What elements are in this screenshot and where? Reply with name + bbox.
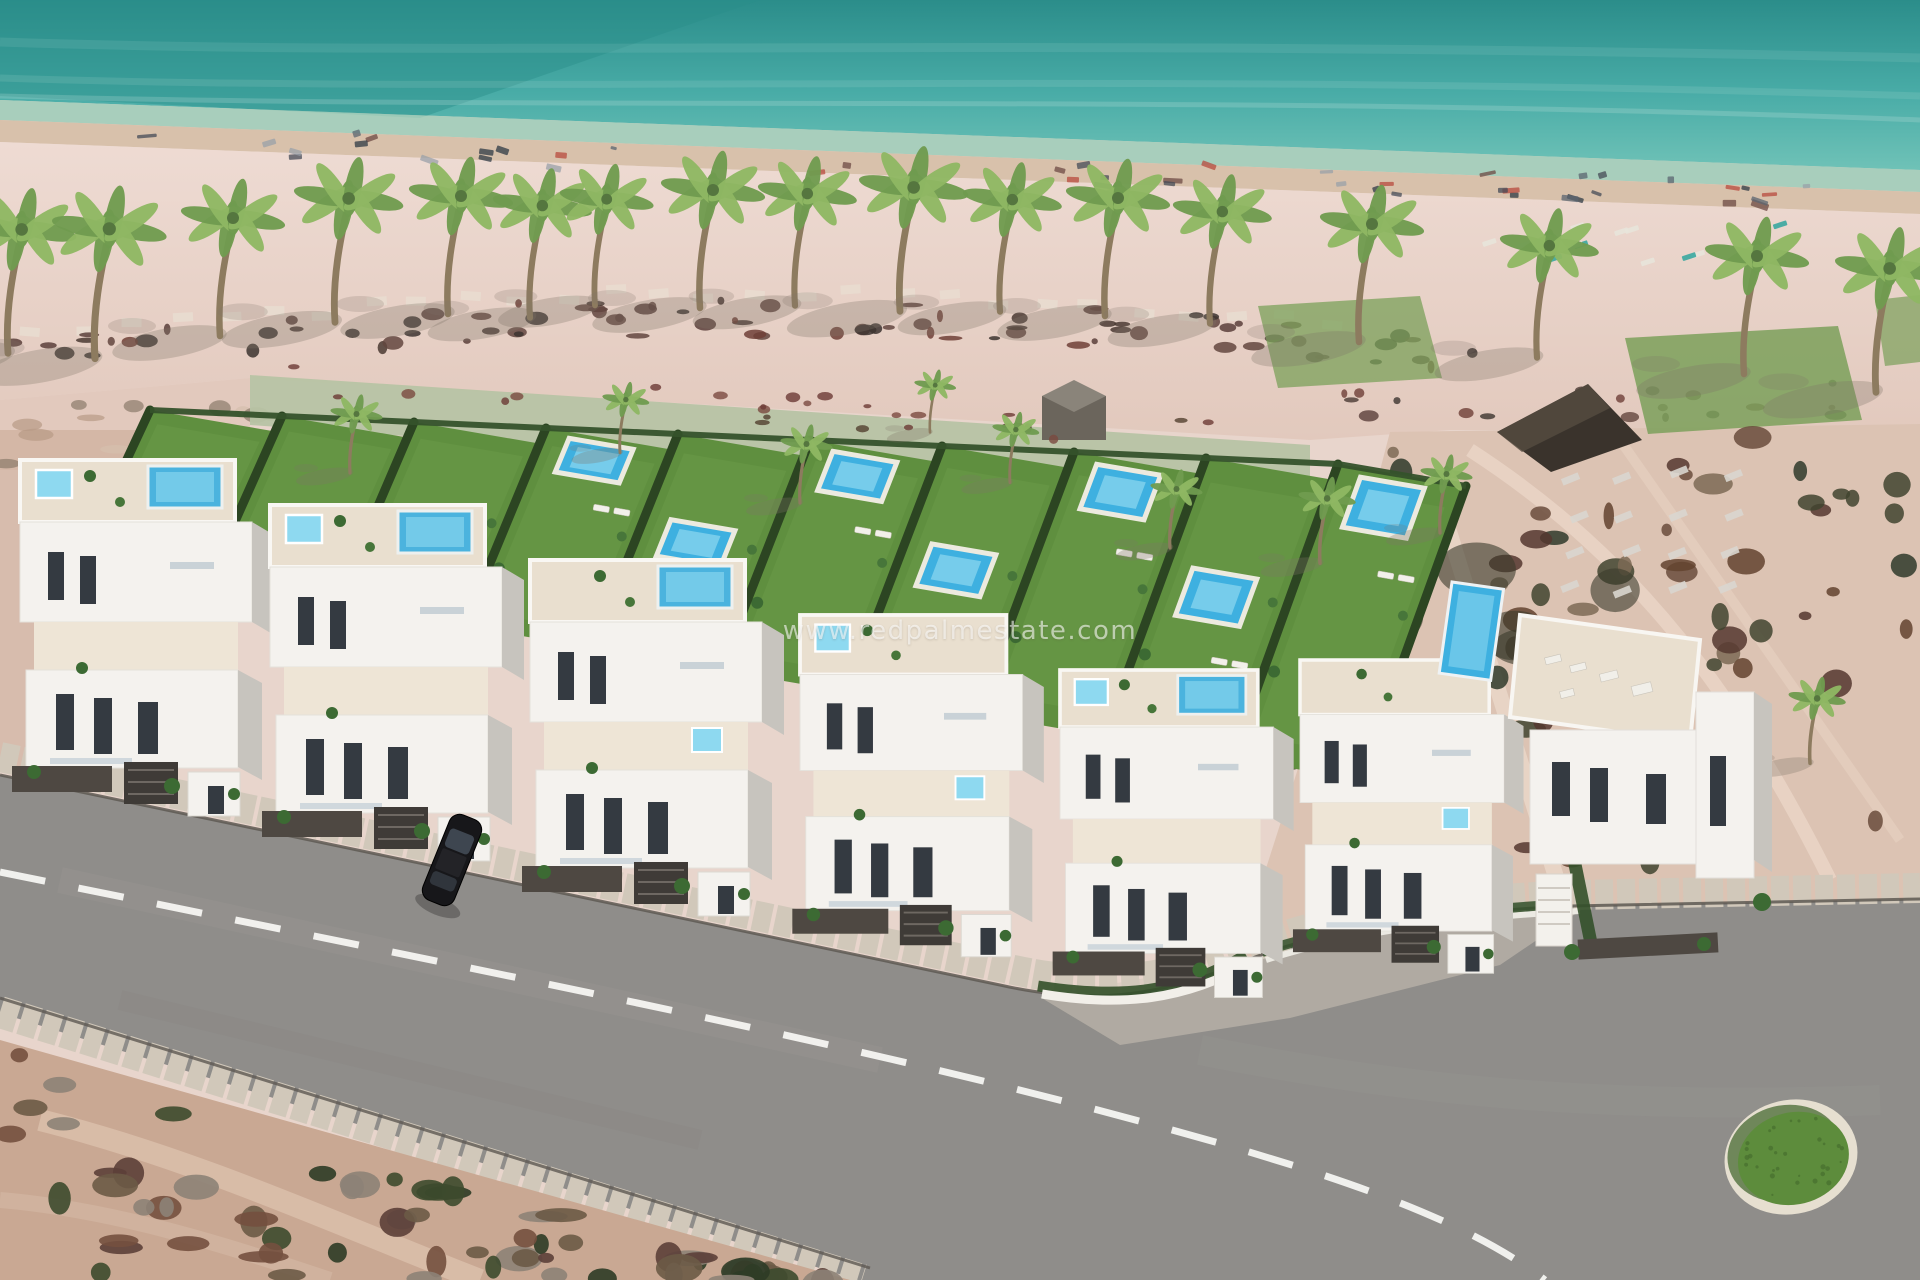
townhouse-cluster	[1053, 670, 1294, 998]
aerial-property-render: www.redpalmestate.com	[0, 0, 1920, 1280]
townhouse-cluster	[522, 560, 784, 916]
townhouse-cluster	[12, 460, 274, 816]
render-image	[0, 0, 1920, 1280]
townhouse-cluster	[1293, 660, 1524, 973]
townhouse-cluster	[262, 505, 524, 861]
townhouse-cluster	[792, 615, 1044, 957]
